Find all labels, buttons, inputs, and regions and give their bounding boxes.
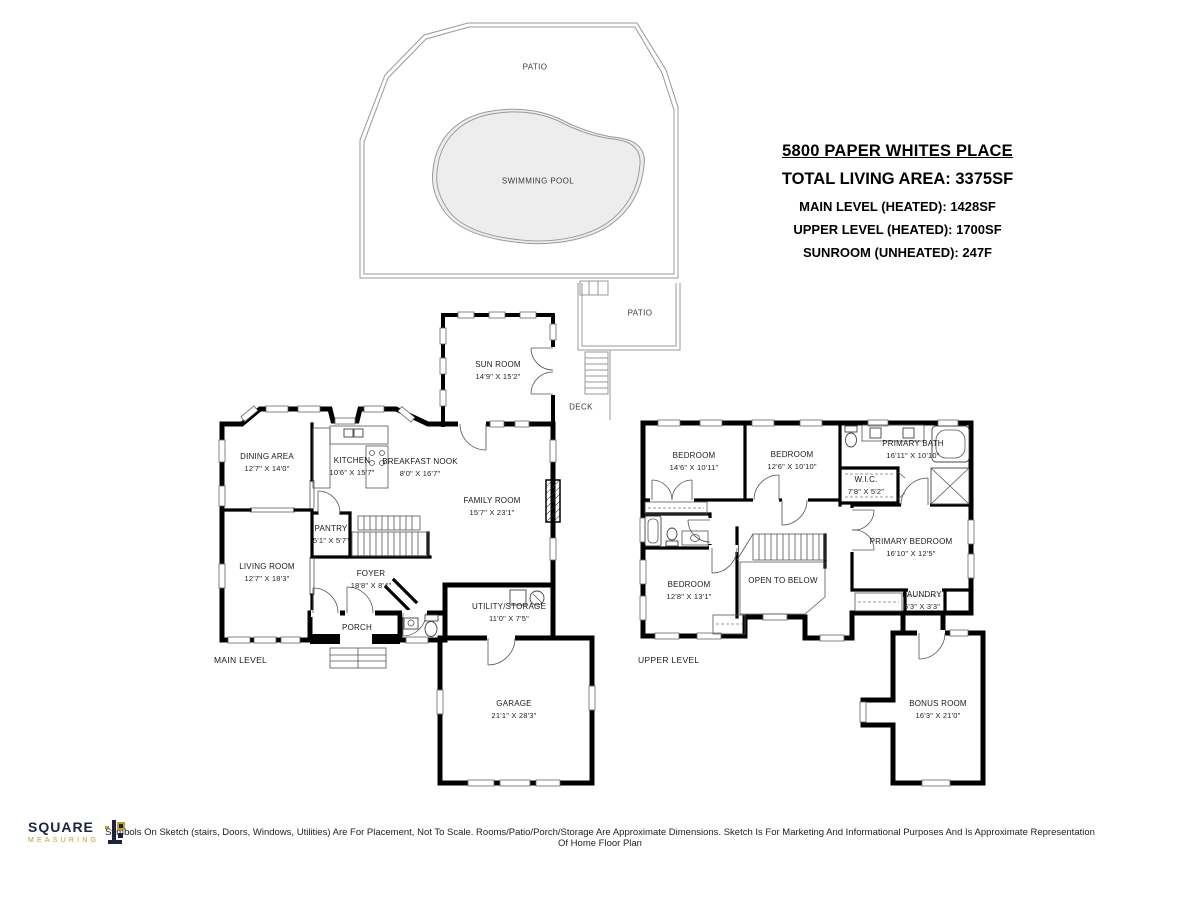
room-label-utility-storage: UTILITY/STORAGE11'0" X 7'5" <box>472 601 546 625</box>
fireplace <box>546 480 560 522</box>
main-level-walls <box>222 315 592 783</box>
upper-level-label: UPPER LEVEL <box>638 655 699 665</box>
room-label-primary-bath: PRIMARY BATH16'11" X 10'10" <box>882 438 944 462</box>
room-label-dining-area: DINING AREA12'7" X 14'0" <box>240 451 294 475</box>
deck-label: DECK <box>569 403 593 412</box>
room-label-pantry: PANTRY5'1" X 5'7" <box>313 523 349 547</box>
room-label-bedroom-1: BEDROOM14'6" X 10'11" <box>670 450 719 474</box>
room-label-porch: PORCH <box>342 622 372 634</box>
patio-small-label: PATIO <box>628 309 653 318</box>
main-level-area: MAIN LEVEL (HEATED): 1428SF <box>775 199 1020 214</box>
room-label-family-room: FAMILY ROOM15'7" X 23'1" <box>463 495 520 519</box>
main-level-label: MAIN LEVEL <box>214 655 267 665</box>
floorplan-drawing: .wall{stroke:#000;stroke-width:5;fill:no… <box>0 0 1200 900</box>
room-label-open-to-below: OPEN TO BELOW <box>748 575 817 587</box>
upper-level-area: UPPER LEVEL (HEATED): 1700SF <box>775 222 1020 237</box>
room-label-garage: GARAGE21'1" X 28'3" <box>492 698 537 722</box>
room-label-laundry: LAUNDRY6'3" X 3'3" <box>902 589 942 613</box>
sunroom-area: SUNROOM (UNHEATED): 247F <box>775 245 1020 260</box>
room-label-foyer: FOYER18'8" X 8'4" <box>351 568 392 592</box>
room-label-sun-room: SUN ROOM14'9" X 15'2" <box>475 359 521 383</box>
room-label-primary-bedroom: PRIMARY BEDROOM16'10" X 12'5" <box>870 536 953 560</box>
logo-text-secondary: MEASURING <box>28 837 99 844</box>
property-address: 5800 PAPER WHITES PLACE <box>775 142 1020 161</box>
room-label-breakfast-nook: BREAKFAST NOOK8'0" X 16'7" <box>382 456 458 480</box>
room-label-living-room: LIVING ROOM12'7" X 18'3" <box>239 561 295 585</box>
swimming-pool-label: SWIMMING POOL <box>502 177 574 186</box>
logo-text-primary: SQUARE <box>28 820 99 834</box>
title-block: 5800 PAPER WHITES PLACE TOTAL LIVING ARE… <box>775 142 1020 268</box>
patio-label: PATIO <box>523 63 548 72</box>
total-living-area: TOTAL LIVING AREA: 3375SF <box>775 170 1020 189</box>
disclaimer-text: Symbols On Sketch (stairs, Doors, Window… <box>100 827 1100 849</box>
room-label-kitchen: KITCHEN10'6" X 15'7" <box>330 455 375 479</box>
room-label-bedroom-2: BEDROOM12'6" X 10'10" <box>767 449 816 473</box>
room-label-bonus-room: BONUS ROOM16'3" X 21'0" <box>909 698 967 722</box>
main-level-windows <box>219 312 595 786</box>
floorplan-canvas: .wall{stroke:#000;stroke-width:5;fill:no… <box>0 0 1200 900</box>
room-label-bedroom-3: BEDROOM12'8" X 13'1" <box>667 579 712 603</box>
room-label-wic: W.I.C.7'8" X 5'2" <box>848 474 884 498</box>
